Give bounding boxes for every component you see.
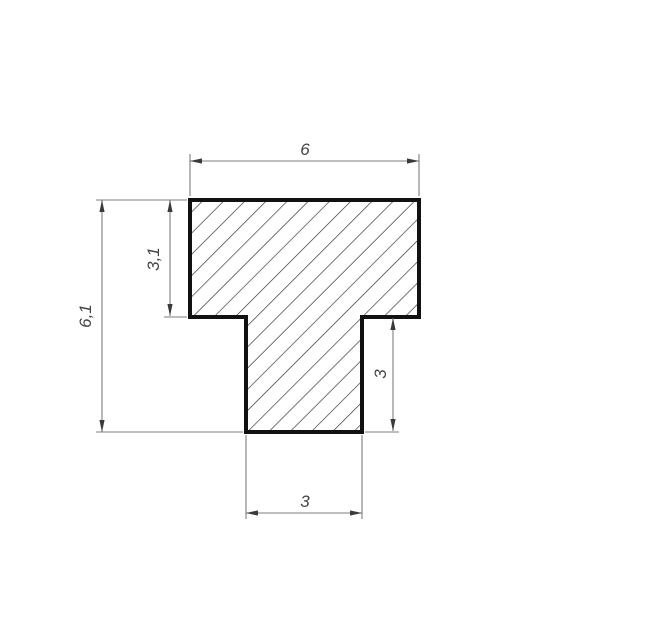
technical-drawing: 6 6,1 3,1 3 3 — [0, 0, 650, 644]
dim-label-flange-height: 3,1 — [144, 247, 163, 271]
dim-label-top-width: 6 — [300, 140, 310, 159]
t-profile-outline — [190, 200, 419, 432]
dim-label-total-height: 6,1 — [76, 304, 95, 328]
dim-label-stem-height: 3 — [371, 369, 390, 379]
dim-label-stem-width: 3 — [300, 492, 310, 511]
drawing-svg: 6 6,1 3,1 3 3 — [0, 0, 650, 644]
